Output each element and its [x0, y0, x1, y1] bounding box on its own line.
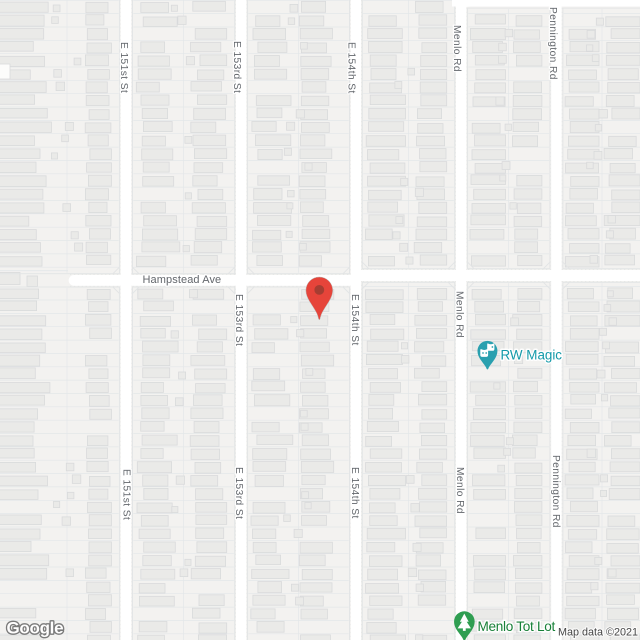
- svg-text:E 153rd St: E 153rd St: [233, 467, 244, 519]
- svg-text:RW Magic: RW Magic: [501, 347, 563, 362]
- svg-text:Pennington Rd: Pennington Rd: [550, 455, 561, 528]
- svg-text:E 154th St: E 154th St: [349, 467, 360, 519]
- svg-text:Menlo Tot Lot: Menlo Tot Lot: [478, 619, 556, 634]
- svg-text:Map data ©2021: Map data ©2021: [558, 626, 638, 638]
- svg-text:Menlo Rd: Menlo Rd: [454, 467, 465, 514]
- svg-text:Menlo Rd: Menlo Rd: [451, 25, 462, 72]
- svg-text:Menlo Rd: Menlo Rd: [454, 291, 465, 338]
- svg-text:E 151st St: E 151st St: [121, 469, 132, 520]
- svg-text:Hampstead Ave: Hampstead Ave: [143, 274, 222, 286]
- svg-text:Google: Google: [7, 619, 64, 638]
- svg-text:E 153rd St: E 153rd St: [233, 294, 244, 346]
- svg-text:E 153rd St: E 153rd St: [231, 41, 242, 93]
- svg-text:Pennington Rd: Pennington Rd: [547, 7, 558, 80]
- svg-text:E 151st St: E 151st St: [118, 42, 129, 93]
- svg-text:E 154th St: E 154th St: [349, 294, 360, 346]
- svg-text:E 154th St: E 154th St: [346, 42, 357, 94]
